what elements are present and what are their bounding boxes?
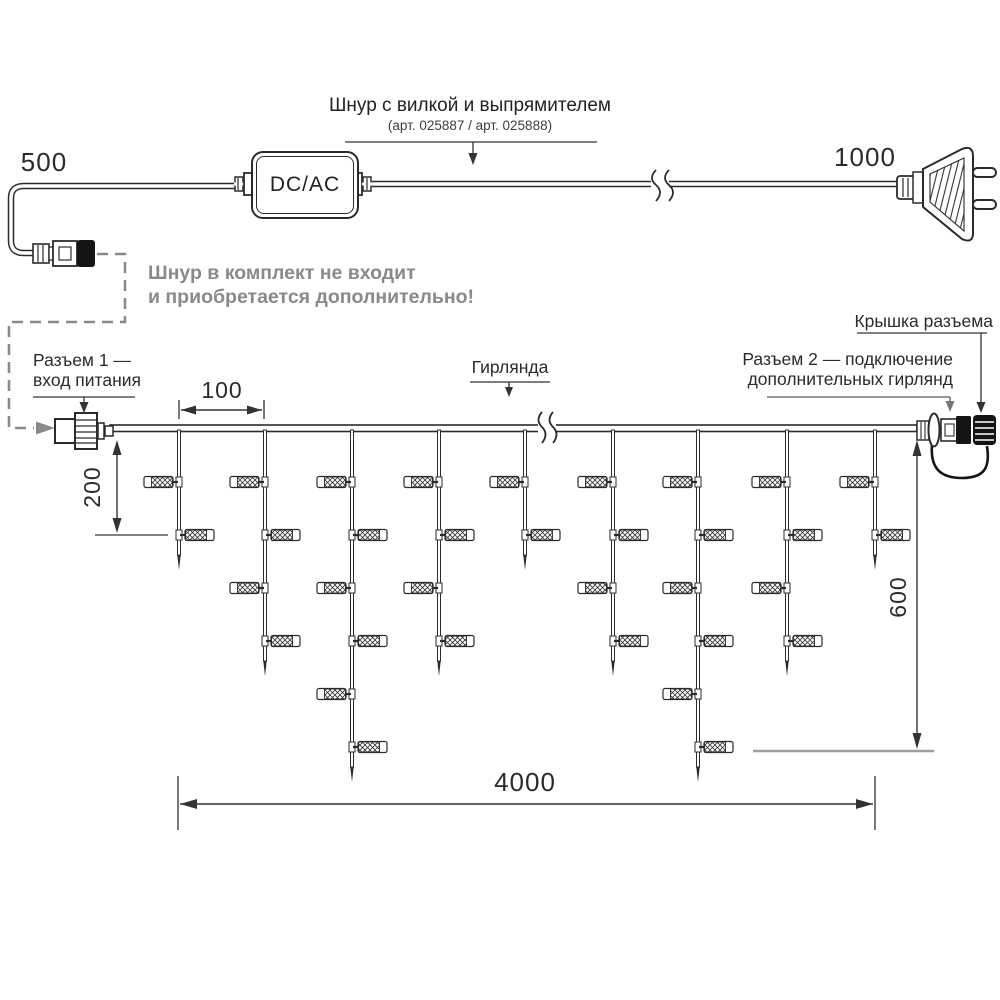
lamp-bulb-icon [620,636,641,646]
dim-600-label: 600 [866,567,930,627]
lamp-bulb-icon [760,583,781,593]
lamp-bulb-icon [359,636,380,646]
garland-label: Гирлянда [430,357,590,378]
drop-tip [785,661,788,676]
connector1-label-line1: Разъем 1 — [33,350,131,371]
connector2-label-line1: Разъем 2 — подключение [703,349,953,370]
power-cord-left [11,186,244,253]
lamp-bulb-icon [705,530,726,540]
drop-tip [523,555,526,570]
lamp-bulb-icon [412,477,433,487]
lamp-bulb-icon [794,530,815,540]
dim-200-label: 200 [61,457,123,517]
drop-line [612,430,615,661]
lamp-bulb-icon [238,583,259,593]
dim-1000-label: 1000 [818,142,912,173]
note-dashed-path [9,254,125,435]
drop-tip [350,767,353,782]
dim-500-label: 500 [8,147,80,178]
drop-line [786,430,789,661]
cord-connector-icon [33,240,95,267]
lamp-bulb-icon [186,530,207,540]
dim-4000-label: 4000 [445,767,605,798]
lamp-bulb-icon [272,530,293,540]
dc-ac-converter: DC/AC [251,151,359,219]
drop-line [438,430,441,661]
cord-subtitle: (арт. 025887 / арт. 025888) [300,118,640,133]
cord-title: Шнур с вилкой и выпрямителем [300,95,640,117]
note-line2: и приобретается дополнительно! [148,286,474,310]
lamp-bulb-icon [412,583,433,593]
garland-wire [110,425,917,432]
lamp-bulb-icon [325,583,346,593]
lamp-bulb-icon [586,583,607,593]
lamp-bulb-icon [325,689,346,699]
lamp-bulb-icon [446,530,467,540]
lamp-bulb-icon [152,477,173,487]
dc-ac-label: DC/AC [256,156,354,214]
drop-tip [696,767,699,782]
power-cord-right [372,170,898,201]
lamp-bulb-icon [272,636,293,646]
cap-label: Крышка разъема [833,311,993,332]
garland-leader-line [470,382,550,397]
lamp-bulb-icon [705,742,726,752]
end-connector-icon [917,414,996,479]
drop-tip [611,661,614,676]
start-connector-icon [55,413,113,449]
dim-100-label: 100 [182,377,262,404]
lamp-bulb-icon [238,477,259,487]
connector2-label-line2: дополнительных гирлянд [703,369,953,390]
lamp-bulb-icon [586,477,607,487]
connector2-leader-line [767,397,955,412]
lamp-bulb-icon [446,636,467,646]
lamp-bulb-icon [498,477,519,487]
lamp-bulb-icon [882,530,903,540]
title-leader-line [345,142,597,165]
lamp-bulb-icon [532,530,553,540]
lamp-bulb-icon [620,530,641,540]
drop-tip [263,661,266,676]
drop-tip [177,555,180,570]
lamp-bulb-icon [359,530,380,540]
garland-diagram: 500 1000 Шнур с вилкой и выпрямителем (а… [0,0,1000,1000]
lamp-bulb-icon [794,636,815,646]
garland-drops [144,430,910,782]
drop-line [264,430,267,661]
connector1-label-line2: вход питания [33,370,141,391]
lamp-bulb-icon [848,477,869,487]
note-line1: Шнур в комплект не входит [148,262,416,286]
lamp-bulb-icon [671,689,692,699]
lamp-bulb-icon [671,477,692,487]
lamp-bulb-icon [760,477,781,487]
lamp-bulb-icon [671,583,692,593]
lamp-bulb-icon [705,636,726,646]
drop-tip [437,661,440,676]
connector1-leader-line [33,397,135,413]
lamp-bulb-icon [359,742,380,752]
lamp-bulb-icon [325,477,346,487]
garland-wire-break-icon [538,412,557,443]
